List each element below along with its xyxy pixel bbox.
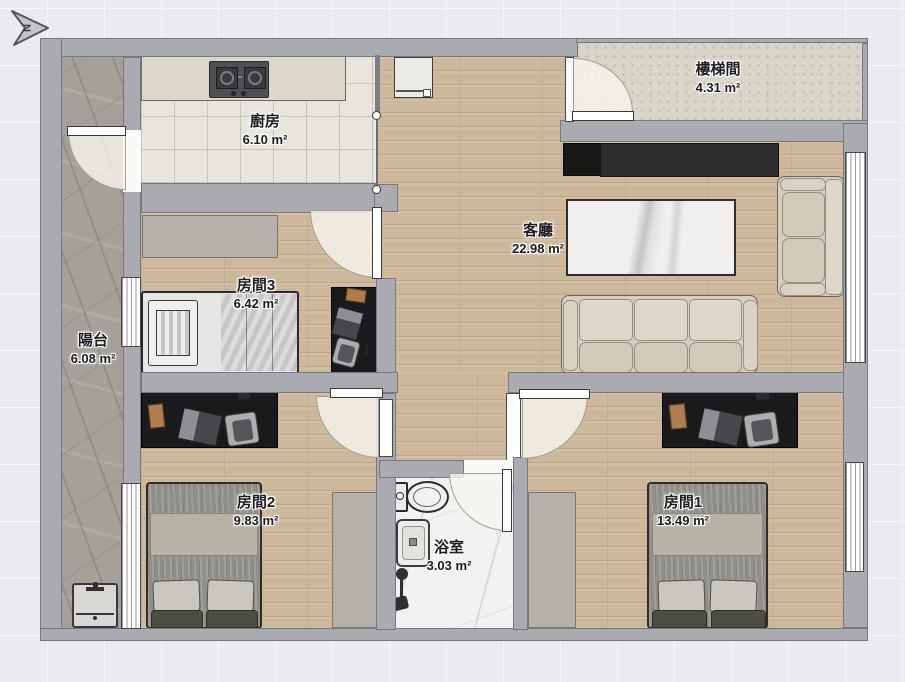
bed-headboard-cushion [151,610,203,628]
laptop [177,407,223,447]
room-area: 3.03 m² [427,558,472,575]
wall-segment [576,38,868,43]
tv-unit-dark[interactable] [563,143,601,176]
laptop [697,407,744,447]
room-label-living: 客廳 22.98 m² [512,221,564,257]
marble-coffee-table[interactable] [566,199,736,276]
washer-knob [93,616,97,620]
room1-window[interactable] [845,462,864,572]
notebook [345,288,367,304]
wall-segment [376,278,396,375]
toilet-seat-line [413,487,441,507]
wall-segment-white [506,393,521,463]
bed-headboard-cushion [206,610,258,628]
bathroom-door[interactable] [502,469,512,532]
three-seat-sofa[interactable] [561,295,758,374]
washing-machine[interactable] [72,583,118,628]
washer-line [76,613,114,615]
room-area: 4.31 m² [695,80,740,97]
hallway-floor[interactable] [394,372,513,460]
stove-knob [241,91,246,96]
room-label-room2: 房間2 9.83 m² [234,493,279,529]
room-label-room1: 房間1 13.49 m² [657,493,709,529]
room-label-bathroom: 浴室 3.03 m² [427,538,472,574]
sink-drain [409,538,417,546]
room-area: 22.98 m² [512,241,564,258]
notebook [669,403,688,430]
pen [364,345,369,356]
room-name: 客廳 [512,221,564,241]
sofa-seat-cushion [782,192,825,237]
chair-seat [337,343,356,363]
room-label-kitchen: 廚房 6.10 m² [243,112,288,148]
room-area: 13.49 m² [657,513,709,530]
room3-window[interactable] [121,277,141,347]
bed-pillow [709,579,757,614]
sofa-armrest [743,300,758,371]
room3-door[interactable] [372,207,382,279]
sofa-armrest [780,283,826,296]
sofa-seat-cushion [782,238,825,283]
wall-segment [40,628,868,641]
room-label-stairwell: 樓梯間 4.31 m² [695,60,740,96]
chair-seat [232,419,254,442]
laptop [331,306,365,341]
bed-pillow [152,579,200,613]
room2-window[interactable] [121,483,141,629]
room1-desk[interactable] [662,390,798,448]
toilet-flush-button [396,492,404,500]
wall-segment [862,43,868,123]
washer-faucet-head [93,582,98,589]
living-room-window[interactable] [845,152,866,363]
room-area: 6.10 m² [243,132,288,149]
bed-pillow [206,579,254,613]
desk-chair [224,411,260,447]
wall-segment [513,457,528,630]
stove-burner [244,67,266,89]
room-name: 陽台 [71,331,116,351]
sofa-armrest [563,300,578,371]
bed-headboard-cushion [711,610,766,628]
wall-segment [141,183,378,213]
sofa-back-cushion [579,299,633,341]
stove-detail [238,76,242,78]
room3-wardrobe[interactable] [142,215,278,258]
room2-door[interactable] [330,388,383,398]
room-area: 6.42 m² [234,296,279,313]
door-pivot-marker [372,185,381,194]
two-seat-sofa[interactable] [777,176,845,297]
wall-segment [560,120,868,142]
svg-text:N: N [20,24,32,32]
room-name: 浴室 [427,538,472,558]
bed-pillow [657,579,705,614]
room-name: 廚房 [243,112,288,132]
room-area: 6.08 m² [71,351,116,368]
room2-desk[interactable] [141,390,278,448]
sofa-backrest [825,179,843,295]
wall-segment [40,38,578,57]
desk-chair [331,336,361,368]
room1-wardrobe[interactable] [528,492,576,628]
tv-console[interactable] [600,143,779,177]
room-area: 9.83 m² [234,513,279,530]
room1-door[interactable] [519,389,590,399]
sofa-back-cushion [634,299,688,341]
kitchen-opening-frame [376,120,378,186]
bed-sheet [200,294,221,371]
room-name: 房間2 [234,493,279,513]
notebook [148,403,165,428]
room-name: 樓梯間 [695,60,740,80]
chair-seat [751,419,774,443]
desk-chair [743,411,780,448]
stove-knob [231,91,236,96]
sofa-back-cushion [689,299,742,341]
gas-stove[interactable] [209,61,269,98]
room2-wardrobe[interactable] [332,492,380,628]
balcony-door[interactable] [67,126,126,136]
stove-burner [216,67,238,89]
sofa-seat-cushion [634,342,688,373]
room-label-room3: 房間3 6.42 m² [234,276,279,312]
bed-pillow-striped [156,310,190,356]
sofa-armrest [780,178,826,191]
room-label-balcony: 陽台 6.08 m² [71,331,116,367]
sofa-seat-cushion [689,342,742,373]
room3-desk[interactable] [331,287,378,374]
sofa-seat-cushion [579,342,633,373]
room-name: 房間3 [234,276,279,296]
fridge-notch [423,89,431,97]
wall-segment [40,38,62,641]
door-pivot-marker [372,111,381,120]
room-name: 房間1 [657,493,709,513]
wall-segment [375,55,380,113]
entrance-door[interactable] [572,111,634,121]
wall-segment-white [379,399,393,457]
fridge-cabinet[interactable] [394,57,433,98]
bed-headboard-cushion [652,610,707,628]
floorplan-canvas: N [0,0,905,682]
